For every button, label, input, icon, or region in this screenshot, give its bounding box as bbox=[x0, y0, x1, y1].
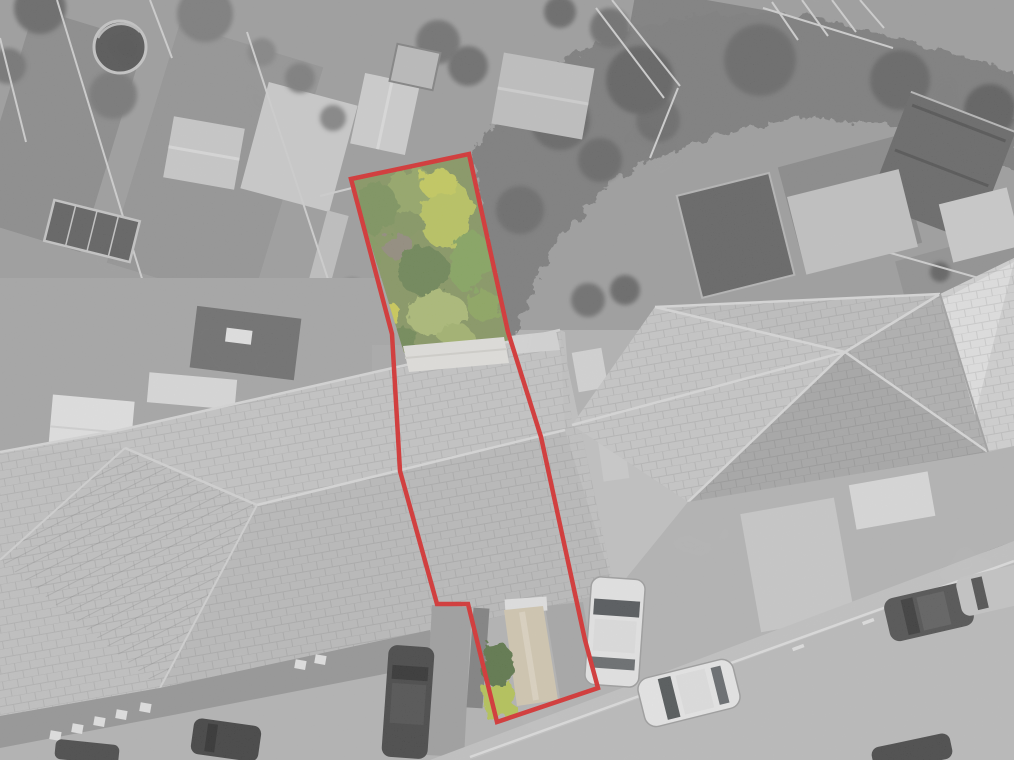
film-grain-overlay bbox=[0, 0, 1014, 760]
aerial-photo-canvas bbox=[0, 0, 1014, 760]
aerial-photo bbox=[0, 0, 1014, 760]
